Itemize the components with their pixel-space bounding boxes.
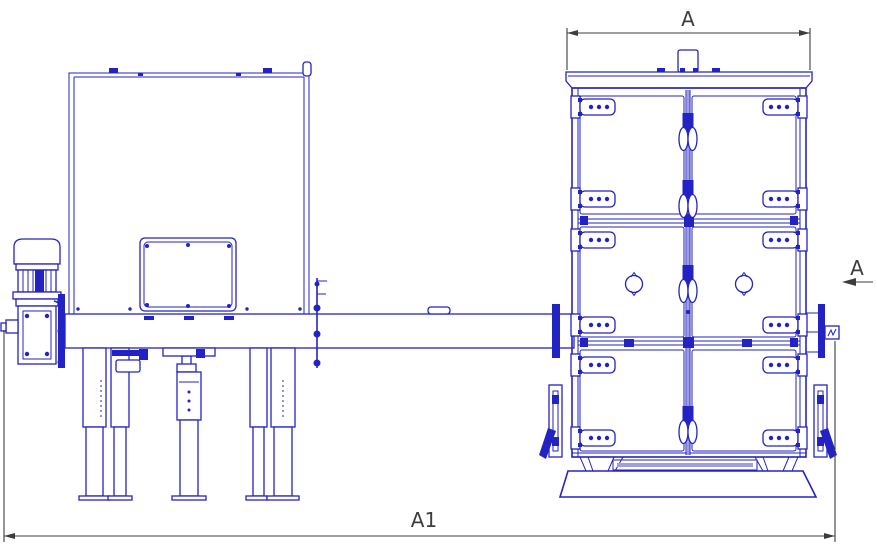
dim-label-a: A (681, 7, 695, 31)
outlet-side (806, 304, 839, 358)
base-pedestal (560, 457, 816, 497)
gearbox (1, 306, 56, 364)
fan-cowl (14, 239, 60, 264)
hopper (69, 62, 311, 314)
row-divider-lower (578, 337, 800, 348)
section-arrow-a: A (842, 256, 873, 286)
drive-flange (58, 294, 66, 368)
top-cap (566, 72, 812, 88)
drive-motor (1, 239, 65, 368)
section-arrowhead (842, 278, 856, 286)
inlet-flange (552, 304, 560, 358)
inspection-tab (428, 307, 450, 314)
row-divider-upper (578, 214, 800, 227)
leg-mount-brackets (112, 348, 215, 372)
support-legs (79, 348, 299, 500)
lifting-lug (657, 50, 720, 72)
technical-drawing-canvas: A A A1 (0, 0, 877, 550)
dim-label-a1: A1 (411, 508, 437, 532)
leg-middle (172, 356, 206, 500)
access-panel (140, 238, 236, 311)
outlet-flange (818, 304, 825, 358)
leg-pair-right (246, 348, 299, 500)
machine-elevation-drawing: A A A1 (0, 0, 877, 550)
filter-cabinet (539, 50, 839, 497)
section-label-a: A (850, 256, 864, 280)
